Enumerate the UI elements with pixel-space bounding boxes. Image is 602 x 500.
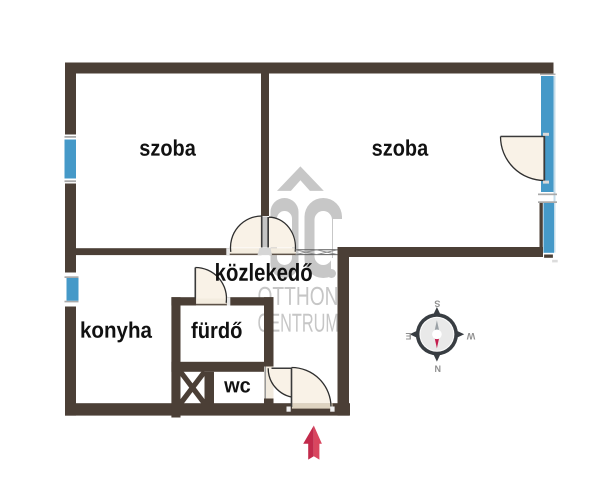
svg-text:szoba: szoba	[139, 136, 196, 161]
svg-text:közlekedő: közlekedő	[215, 260, 313, 287]
svg-text:wc: wc	[223, 374, 251, 397]
svg-text:fürdő: fürdő	[191, 318, 242, 343]
svg-text:konyha: konyha	[80, 318, 152, 343]
svg-text:szoba: szoba	[372, 136, 429, 161]
svg-text:S: S	[434, 298, 440, 308]
svg-text:W: W	[466, 331, 475, 341]
svg-text:E: E	[405, 331, 411, 341]
svg-text:N: N	[434, 363, 441, 373]
